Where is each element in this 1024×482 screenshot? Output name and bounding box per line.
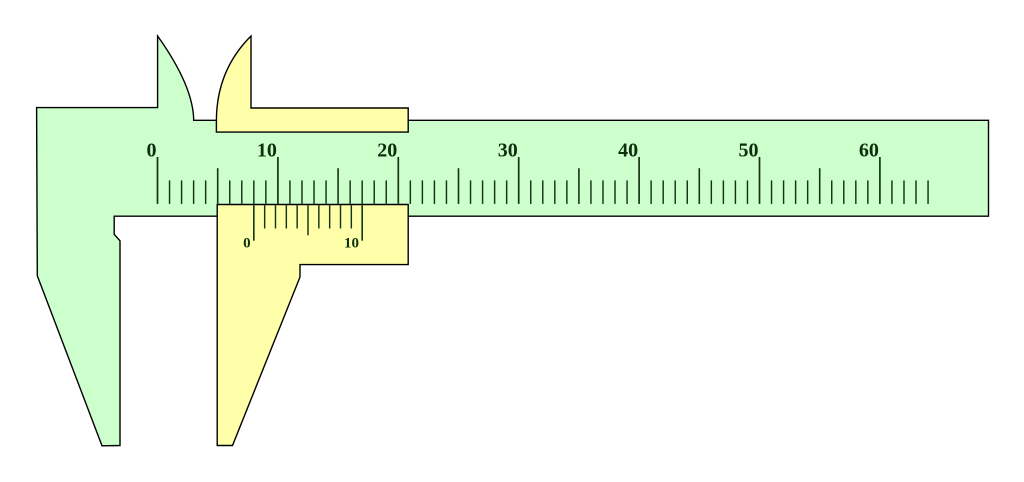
svg-text:0: 0 bbox=[243, 235, 251, 251]
svg-text:40: 40 bbox=[618, 140, 638, 162]
svg-text:0: 0 bbox=[147, 140, 157, 162]
svg-text:10: 10 bbox=[344, 235, 359, 251]
svg-text:60: 60 bbox=[859, 140, 879, 162]
svg-text:30: 30 bbox=[498, 140, 518, 162]
svg-text:20: 20 bbox=[377, 140, 397, 162]
svg-text:10: 10 bbox=[257, 140, 277, 162]
svg-text:50: 50 bbox=[739, 140, 759, 162]
